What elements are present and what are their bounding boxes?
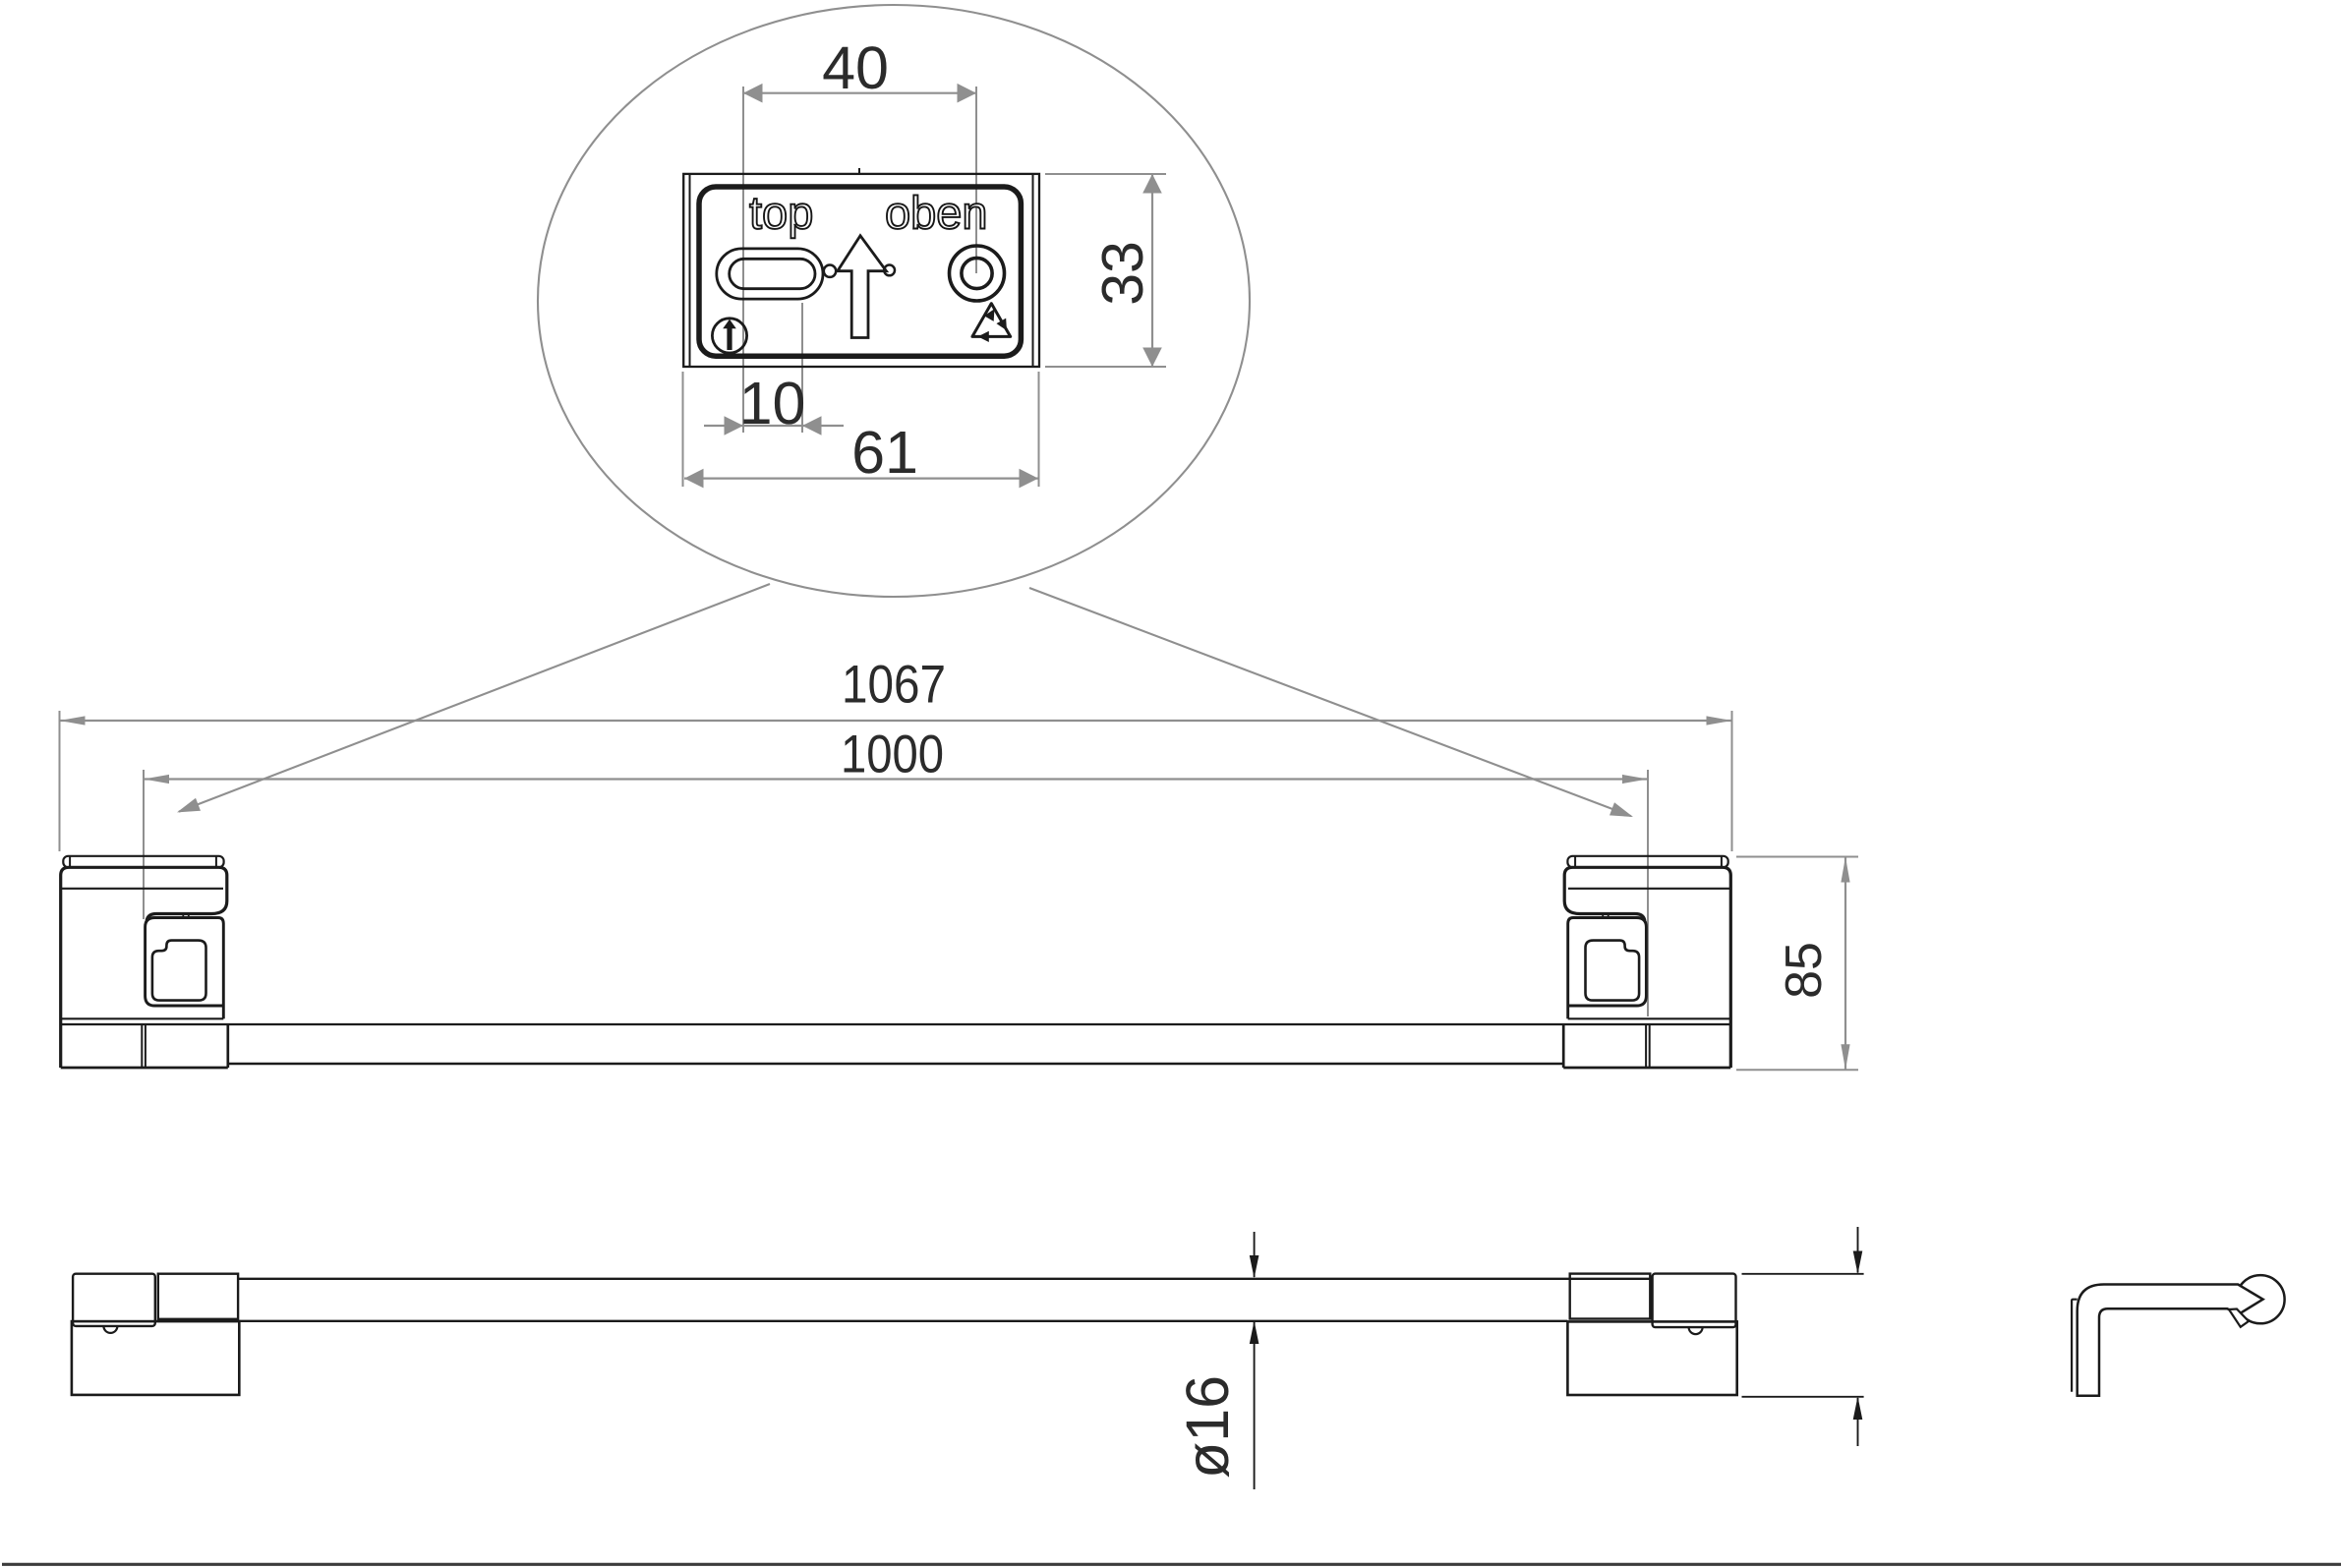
svg-text:1067: 1067 [842, 654, 946, 714]
svg-text:61: 61 [851, 419, 918, 486]
svg-text:oben: oben [885, 187, 988, 239]
svg-text:40: 40 [822, 34, 889, 101]
svg-text:10: 10 [739, 370, 806, 436]
svg-text:top: top [749, 187, 813, 239]
svg-text:33: 33 [1090, 241, 1155, 306]
svg-text:1000: 1000 [841, 724, 944, 784]
svg-text:ø16: ø16 [1174, 1375, 1241, 1479]
svg-text:85: 85 [1776, 942, 1833, 999]
